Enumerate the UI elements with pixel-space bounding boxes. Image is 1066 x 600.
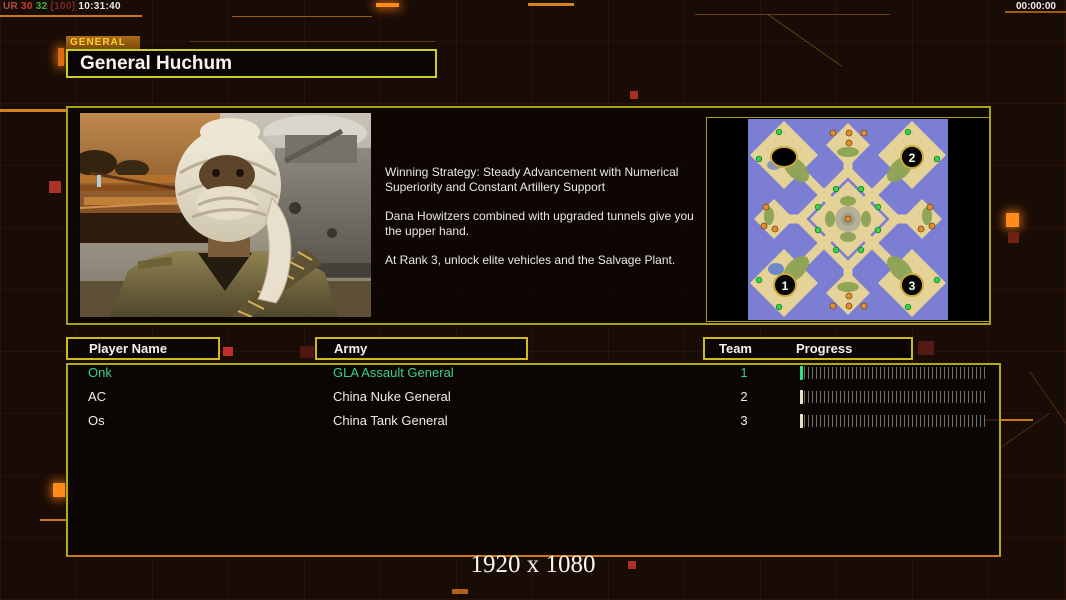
general-portrait xyxy=(80,113,371,317)
minimap: 2 1 3 xyxy=(748,119,948,320)
column-header-team: Team xyxy=(719,339,752,358)
player-team: 1 xyxy=(726,365,762,381)
debug-clock: 10:31:40 xyxy=(78,1,120,12)
player-team: 2 xyxy=(726,389,762,405)
column-header-team-progress: Team Progress xyxy=(703,337,913,360)
load-progress-bar xyxy=(800,367,986,379)
player-army: China Nuke General xyxy=(333,389,451,405)
resolution-label: 1920 x 1080 xyxy=(0,551,1066,579)
player-name: AC xyxy=(88,389,106,405)
debug-label: UR xyxy=(3,1,18,12)
debug-value-2: 32 xyxy=(36,1,48,12)
start-position-1: 1 xyxy=(774,274,796,296)
strategy-briefing: Winning Strategy: Steady Advancement wit… xyxy=(385,165,707,282)
start-position-local xyxy=(771,147,797,167)
player-name: Onk xyxy=(88,365,112,381)
match-timer: 00:00:00 xyxy=(1016,1,1056,12)
column-header-progress: Progress xyxy=(796,339,852,358)
player-team: 3 xyxy=(726,413,762,429)
briefing-paragraph: Dana Howitzers combined with upgraded tu… xyxy=(385,209,707,239)
minimap-panel: 2 1 3 xyxy=(706,117,990,322)
briefing-paragraph: At Rank 3, unlock elite vehicles and the… xyxy=(385,253,707,268)
column-header-army: Army xyxy=(315,337,528,360)
start-position-2-label: 2 xyxy=(909,151,916,165)
load-progress-bar xyxy=(800,415,986,427)
loading-screen: UR3032[100]10:31:40 00:00:00 GENERAL Gen… xyxy=(0,0,1066,600)
general-name-title: General Huchum xyxy=(66,49,437,78)
debug-value-1: 30 xyxy=(21,1,33,12)
column-header-player-name: Player Name xyxy=(66,337,220,360)
start-position-2: 2 xyxy=(901,146,923,168)
debug-value-3: [100] xyxy=(51,1,76,12)
start-position-1-label: 1 xyxy=(782,279,789,293)
player-army: GLA Assault General xyxy=(333,365,454,381)
portrait-image xyxy=(80,113,371,317)
load-progress-bar xyxy=(800,391,986,403)
briefing-paragraph: Winning Strategy: Steady Advancement wit… xyxy=(385,165,707,195)
general-tab: GENERAL xyxy=(66,36,140,49)
player-name: Os xyxy=(88,413,105,429)
start-position-3-label: 3 xyxy=(909,279,916,293)
start-position-3: 3 xyxy=(901,274,923,296)
debug-readout: UR3032[100]10:31:40 xyxy=(3,1,124,12)
player-army: China Tank General xyxy=(333,413,448,429)
